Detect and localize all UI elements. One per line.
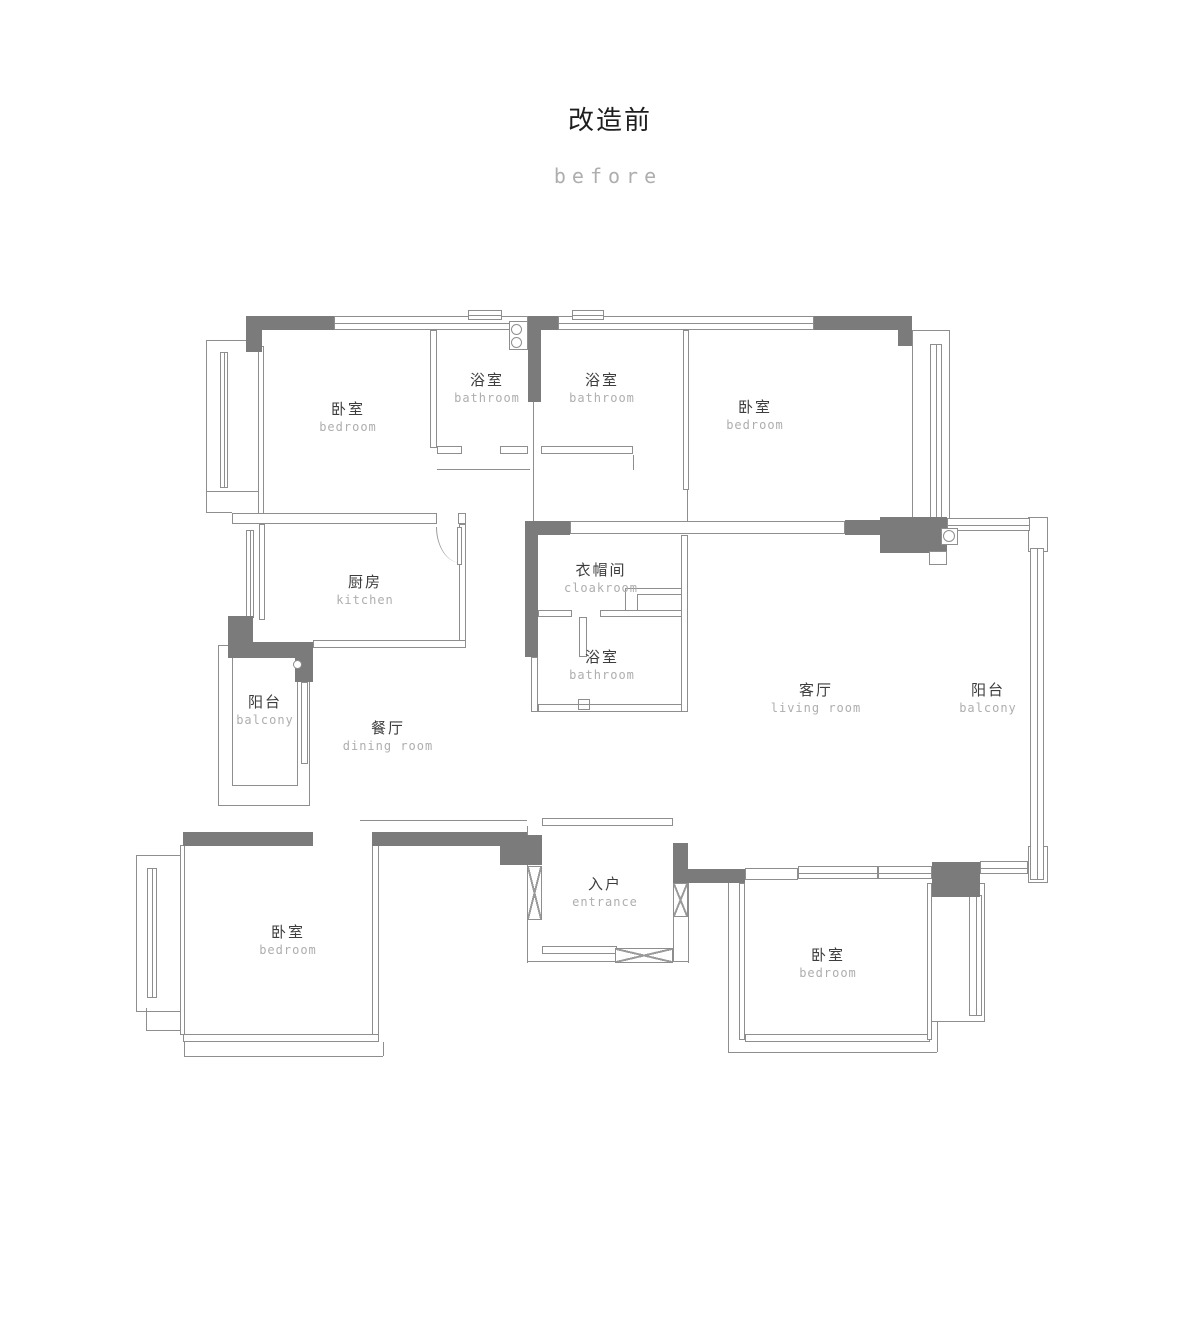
window: [930, 344, 942, 518]
wall: [259, 524, 265, 620]
wall: [600, 610, 683, 617]
wall: [739, 883, 745, 1040]
room-label-dining-room: 餐厅 dining room: [343, 720, 433, 754]
window: [980, 861, 1028, 874]
room-name-zh: 卧室: [811, 947, 845, 965]
room-name-zh: 卧室: [271, 924, 305, 942]
structural-wall: [538, 521, 570, 535]
room-name-zh: 厨房: [348, 574, 382, 592]
wall: [372, 845, 379, 1040]
shaft-column: [615, 948, 673, 963]
room-name-en: cloakroom: [564, 581, 638, 596]
outline: [206, 492, 207, 512]
wall: [313, 640, 466, 648]
room-label-bathroom-middle: 浴室 bathroom: [569, 649, 635, 683]
wall: [430, 330, 437, 448]
outline: [383, 1042, 384, 1056]
outline: [360, 820, 527, 821]
structural-wall: [500, 835, 542, 865]
wall: [183, 1034, 379, 1042]
wall-corner-box: [1028, 517, 1048, 552]
structural-wall: [253, 642, 313, 658]
room-label-cloakroom: 衣帽间 cloakroom: [564, 562, 638, 596]
wall: [541, 446, 633, 454]
structural-wall: [228, 616, 253, 658]
window: [798, 866, 878, 879]
outline: [533, 402, 534, 522]
wall: [301, 682, 308, 764]
outline: [688, 883, 689, 963]
outline: [146, 1008, 147, 1030]
outline: [437, 469, 530, 470]
window: [1030, 548, 1044, 880]
wall: [500, 446, 528, 454]
structural-wall: [845, 520, 931, 535]
room-label-bedroom-bottom-right: 卧室 bedroom: [799, 947, 857, 981]
sink-basin: [511, 337, 522, 348]
wall: [538, 704, 683, 712]
wall: [458, 513, 466, 524]
wall: [258, 346, 264, 516]
wall: [531, 657, 538, 712]
window: [220, 352, 228, 488]
room-label-bedroom-top-left: 卧室 bedroom: [319, 401, 377, 435]
door-leaf: [457, 527, 462, 565]
outline: [687, 490, 688, 521]
outline: [937, 1022, 938, 1052]
room-name-zh: 客厅: [799, 682, 833, 700]
room-name-zh: 浴室: [585, 649, 619, 667]
structural-wall: [183, 832, 313, 846]
bay-window-frame: [136, 855, 183, 1012]
floor-plan: 卧室 bedroom 浴室 bathroom 浴室 bathroom 卧室 be…: [0, 0, 1200, 1332]
room-name-en: dining room: [343, 739, 433, 754]
structural-wall: [688, 869, 745, 883]
room-name-zh: 阳台: [248, 694, 282, 712]
room-name-zh: 浴室: [470, 372, 504, 390]
room-label-balcony-left: 阳台 balcony: [236, 694, 294, 728]
room-name-en: entrance: [572, 895, 638, 910]
structural-wall: [246, 316, 262, 352]
wall: [927, 883, 932, 1040]
room-label-kitchen: 厨房 kitchen: [336, 574, 394, 608]
room-name-en: bathroom: [454, 391, 520, 406]
structural-wall: [525, 521, 538, 657]
wall-notch: [929, 551, 947, 565]
structural-wall: [528, 316, 541, 402]
room-label-bathroom-top-left: 浴室 bathroom: [454, 372, 520, 406]
room-name-zh: 卧室: [738, 399, 772, 417]
room-name-en: living room: [771, 701, 861, 716]
drain: [943, 530, 955, 542]
wall: [538, 610, 572, 617]
room-name-zh: 入户: [588, 876, 622, 894]
room-name-zh: 卧室: [331, 401, 365, 419]
window-symbol: [572, 310, 604, 320]
window: [147, 868, 157, 998]
room-label-entrance: 入户 entrance: [572, 876, 638, 910]
room-name-zh: 浴室: [585, 372, 619, 390]
outline: [184, 1056, 383, 1057]
room-label-bedroom-top-right: 卧室 bedroom: [726, 399, 784, 433]
room-name-en: balcony: [959, 701, 1017, 716]
structural-wall: [898, 316, 912, 346]
wall-opening-header: [570, 521, 845, 534]
window: [969, 895, 982, 1016]
outline: [206, 512, 232, 513]
room-name-en: bathroom: [569, 668, 635, 683]
room-name-en: bedroom: [319, 420, 377, 435]
wall: [542, 946, 617, 954]
fixture: [578, 699, 590, 710]
room-name-zh: 餐厅: [371, 720, 405, 738]
room-name-en: bathroom: [569, 391, 635, 406]
bay-window-frame: [206, 340, 260, 492]
room-label-balcony-right: 阳台 balcony: [959, 682, 1017, 716]
room-name-en: bedroom: [259, 943, 317, 958]
window: [246, 530, 254, 618]
wall: [683, 330, 689, 490]
wall: [542, 818, 673, 826]
wall: [232, 513, 437, 524]
shaft-column: [673, 883, 688, 917]
room-name-en: kitchen: [336, 593, 394, 608]
drain: [293, 660, 302, 669]
wall: [745, 1034, 930, 1042]
room-name-zh: 阳台: [971, 682, 1005, 700]
room-name-en: balcony: [236, 713, 294, 728]
outline: [728, 1052, 937, 1053]
room-name-en: bedroom: [726, 418, 784, 433]
room-name-zh: 衣帽间: [575, 562, 626, 580]
wall: [681, 535, 688, 712]
structural-wall: [932, 862, 980, 897]
floor-plan-page: 改造前 before: [0, 0, 1200, 1332]
window-symbol: [468, 310, 502, 320]
outline: [146, 1030, 184, 1031]
room-label-bedroom-bottom-left: 卧室 bedroom: [259, 924, 317, 958]
outline: [633, 455, 634, 470]
wall: [180, 845, 185, 1035]
wall-opening-header: [745, 868, 798, 880]
structural-wall: [673, 843, 688, 883]
shaft-column: [527, 866, 542, 920]
room-label-bathroom-top-middle: 浴室 bathroom: [569, 372, 635, 406]
window: [947, 518, 1030, 531]
outline: [728, 883, 729, 1052]
window: [878, 866, 932, 879]
room-name-en: bedroom: [799, 966, 857, 981]
sink-basin: [511, 324, 522, 335]
room-label-living-room: 客厅 living room: [771, 682, 861, 716]
wall: [437, 446, 462, 454]
